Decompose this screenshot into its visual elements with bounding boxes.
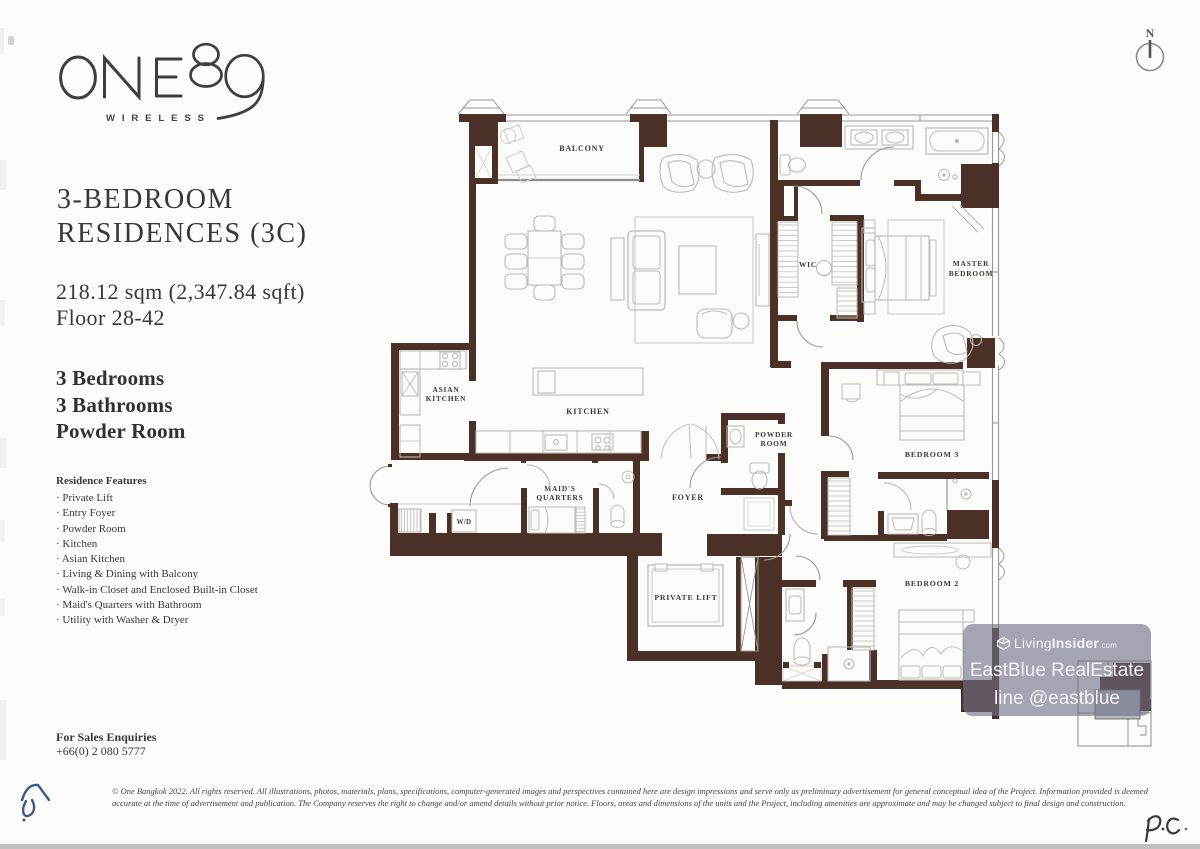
svg-text:ASIAN: ASIAN bbox=[433, 385, 460, 394]
svg-text:QUARTERS: QUARTERS bbox=[536, 493, 583, 502]
svg-text:ROOM: ROOM bbox=[760, 439, 787, 448]
svg-text:PRIVATE LIFT: PRIVATE LIFT bbox=[654, 593, 717, 602]
svg-text:BEDROOM 2: BEDROOM 2 bbox=[905, 579, 959, 588]
svg-text:POWDER: POWDER bbox=[755, 430, 793, 439]
svg-text:BALCONY: BALCONY bbox=[559, 144, 605, 153]
svg-text:BEDROOM: BEDROOM bbox=[949, 269, 994, 278]
svg-text:W/D: W/D bbox=[457, 519, 472, 526]
svg-text:MASTER: MASTER bbox=[953, 259, 989, 268]
svg-text:KITCHEN: KITCHEN bbox=[566, 407, 609, 416]
svg-text:BEDROOM 3: BEDROOM 3 bbox=[905, 450, 959, 459]
svg-text:FOYER: FOYER bbox=[672, 493, 704, 502]
svg-text:KITCHEN: KITCHEN bbox=[426, 394, 467, 403]
svg-text:N: N bbox=[1146, 26, 1155, 40]
svg-text:MAID'S: MAID'S bbox=[544, 484, 576, 493]
svg-text:WIC: WIC bbox=[799, 260, 817, 269]
